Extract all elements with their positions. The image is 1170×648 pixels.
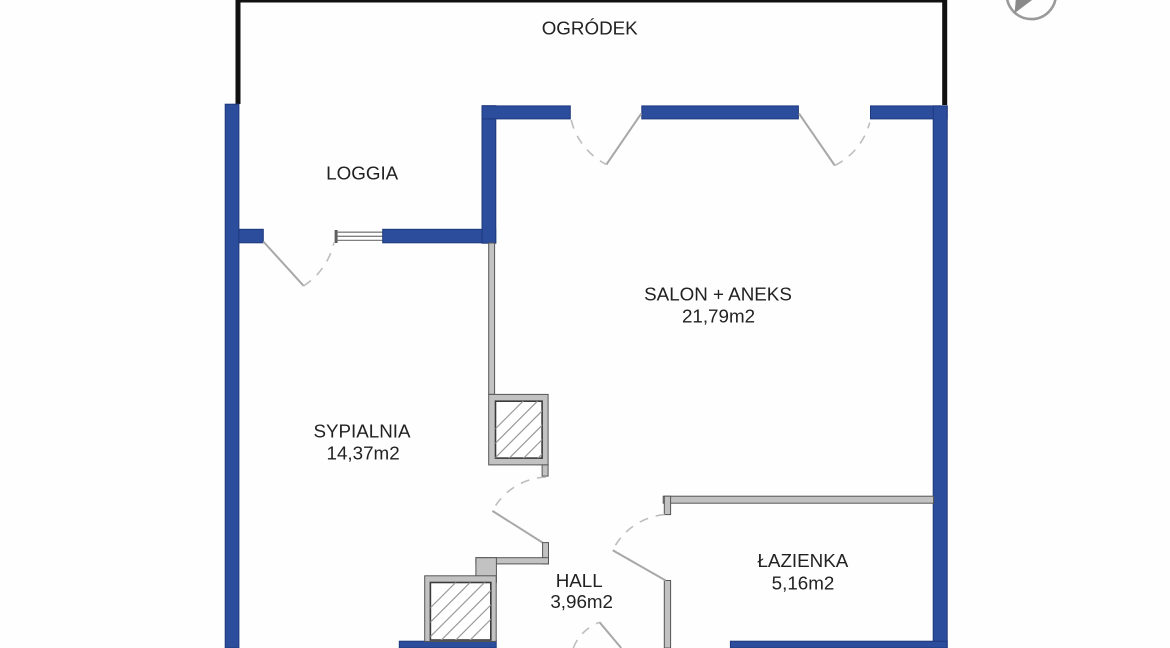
svg-text:3,96m2: 3,96m2 (550, 591, 613, 612)
svg-text:21,79m2: 21,79m2 (682, 305, 755, 326)
svg-text:5,16m2: 5,16m2 (772, 573, 835, 594)
svg-text:14,37m2: 14,37m2 (327, 443, 400, 464)
svg-text:OGRÓDEK: OGRÓDEK (542, 17, 638, 38)
svg-text:SALON + ANEKS: SALON + ANEKS (644, 284, 792, 305)
svg-text:ŁAZIENKA: ŁAZIENKA (757, 550, 848, 571)
svg-text:SYPIALNIA: SYPIALNIA (313, 421, 411, 442)
svg-text:LOGGIA: LOGGIA (326, 163, 398, 184)
svg-text:HALL: HALL (556, 570, 603, 591)
